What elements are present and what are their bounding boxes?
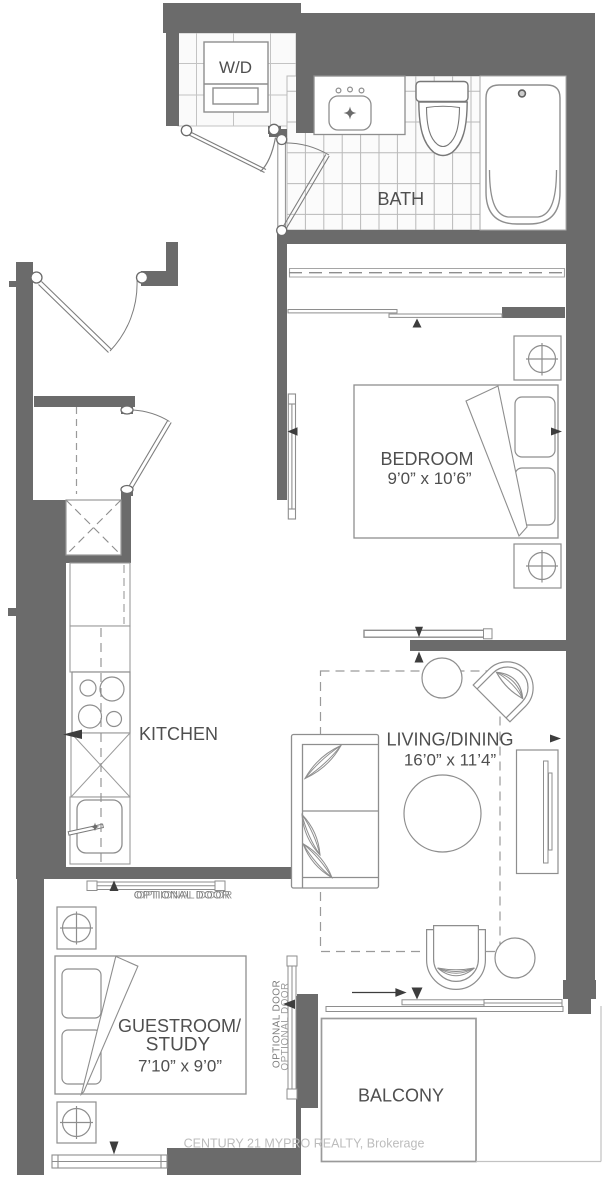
- svg-text:GUESTROOM/: GUESTROOM/: [118, 1016, 241, 1036]
- svg-text:W/D: W/D: [219, 58, 252, 77]
- svg-text:BEDROOM: BEDROOM: [380, 449, 473, 469]
- svg-text:7’10” x 9’0”: 7’10” x 9’0”: [138, 1057, 222, 1076]
- svg-text:16’0” x 11’4”: 16’0” x 11’4”: [404, 751, 497, 770]
- svg-text:9’0” x 10’6”: 9’0” x 10’6”: [387, 469, 471, 488]
- svg-text:BALCONY: BALCONY: [358, 1086, 444, 1106]
- svg-text:CENTURY 21 MYPRO REALTY, Broke: CENTURY 21 MYPRO REALTY, Brokerage: [184, 1137, 425, 1151]
- svg-text:OPTIONAL DOOR: OPTIONAL DOOR: [280, 982, 291, 1070]
- svg-text:KITCHEN: KITCHEN: [139, 724, 218, 744]
- svg-text:LIVING/DINING: LIVING/DINING: [386, 730, 513, 750]
- svg-text:STUDY: STUDY: [146, 1035, 211, 1056]
- svg-text:OPTIONAL DOOR: OPTIONAL DOOR: [136, 890, 232, 902]
- svg-text:BATH: BATH: [378, 189, 425, 209]
